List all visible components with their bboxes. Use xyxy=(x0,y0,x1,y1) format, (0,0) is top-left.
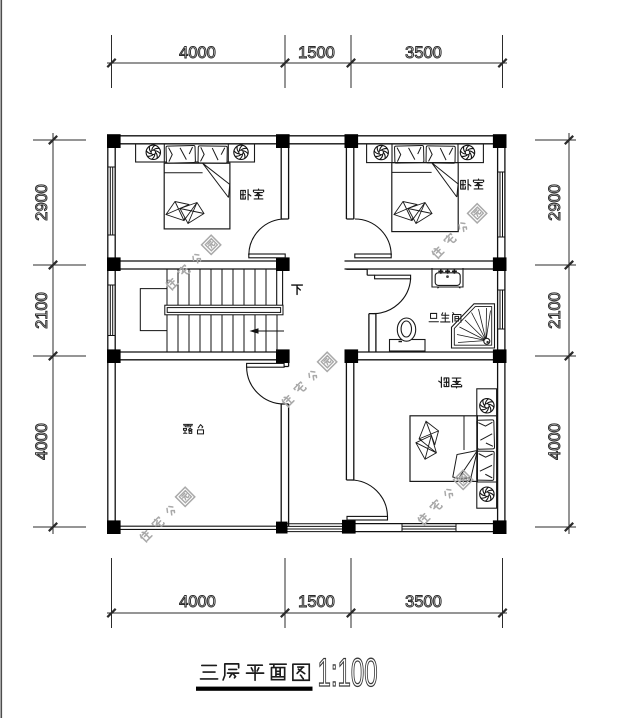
svg-text:1500: 1500 xyxy=(298,44,335,62)
svg-text:2900: 2900 xyxy=(33,184,51,221)
svg-text:2100: 2100 xyxy=(33,292,51,329)
svg-text:2900: 2900 xyxy=(546,184,564,221)
svg-text:4000: 4000 xyxy=(33,423,51,460)
svg-text:2100: 2100 xyxy=(546,292,564,329)
svg-text:4000: 4000 xyxy=(179,593,216,611)
svg-text:1500: 1500 xyxy=(298,593,335,611)
svg-text:3500: 3500 xyxy=(405,593,442,611)
svg-text:3500: 3500 xyxy=(405,44,442,62)
svg-text:1:100: 1:100 xyxy=(318,650,378,695)
svg-text:4000: 4000 xyxy=(179,44,216,62)
svg-text:4000: 4000 xyxy=(546,423,564,460)
